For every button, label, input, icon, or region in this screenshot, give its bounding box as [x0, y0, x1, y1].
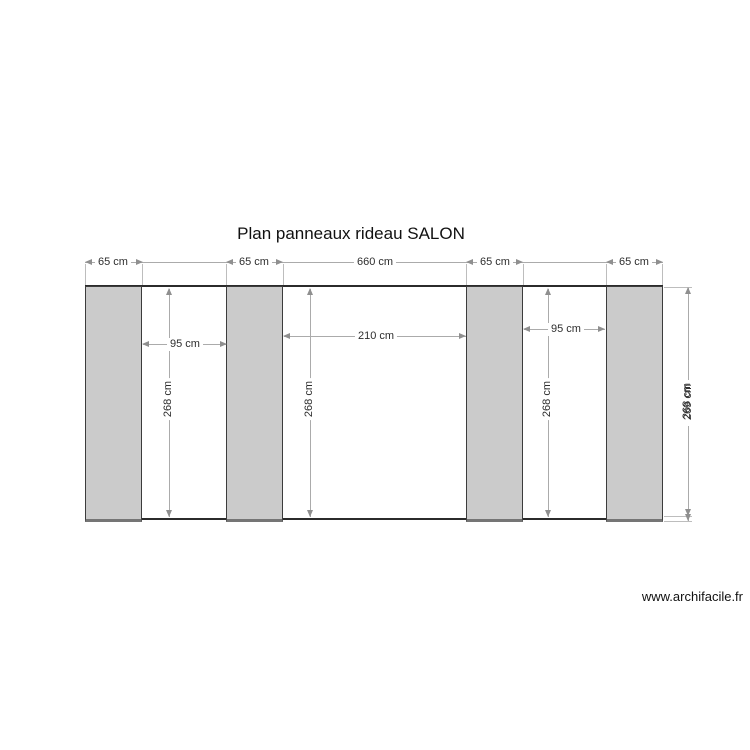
dim-label-gap1: 95 cm	[167, 338, 203, 351]
dim-label-height-2: 268 cm	[303, 378, 316, 420]
extension-line	[662, 264, 663, 286]
dim-label-height-1: 268 cm	[162, 378, 175, 420]
page-title: Plan panneaux rideau SALON	[237, 224, 465, 244]
dim-arrow-right	[598, 326, 605, 332]
curtain-panel-3	[466, 286, 523, 522]
dim-arrow-up	[685, 287, 691, 294]
dim-label-gap3: 95 cm	[548, 323, 584, 336]
curtain-panel-2	[226, 286, 283, 522]
dim-label-panel2-width: 65 cm	[236, 256, 272, 269]
dim-arrow-up	[307, 288, 313, 295]
dim-arrow-down	[685, 514, 691, 521]
dim-arrow-left	[523, 326, 530, 332]
dim-arrow-up	[166, 288, 172, 295]
dim-arrow-left	[466, 259, 473, 265]
archifacile-watermark: www.archifacile.fr	[642, 589, 743, 604]
dim-arrow-right	[656, 259, 663, 265]
outer-extension-bottom-2	[664, 521, 692, 522]
plan-canvas: Plan panneaux rideau SALON 65 cm 65 cm 6…	[0, 0, 750, 750]
extension-line	[226, 264, 227, 286]
extension-line	[283, 264, 284, 286]
dim-label-panel3-width: 65 cm	[477, 256, 513, 269]
dim-arrow-down	[307, 510, 313, 517]
dim-arrow-left	[85, 259, 92, 265]
dim-label-height-3: 268 cm	[541, 378, 554, 420]
wall-bottom-line	[85, 518, 663, 520]
extension-line	[142, 264, 143, 286]
dim-arrow-down	[166, 510, 172, 517]
dim-arrow-up	[545, 288, 551, 295]
dim-label-panel1-width: 65 cm	[95, 256, 131, 269]
dim-arrow-left	[142, 341, 149, 347]
dim-label-total-width: 660 cm	[354, 256, 396, 269]
dim-arrow-right	[276, 259, 283, 265]
dim-arrow-right	[516, 259, 523, 265]
dim-arrow-left	[283, 333, 290, 339]
dim-arrow-right	[459, 333, 466, 339]
extension-line	[606, 264, 607, 286]
dim-arrow-right	[220, 341, 227, 347]
curtain-panel-4	[606, 286, 663, 522]
extension-line	[466, 264, 467, 286]
dim-arrow-left	[606, 259, 613, 265]
curtain-panel-1	[85, 286, 142, 522]
dim-arrow-down	[545, 510, 551, 517]
wall-top-line	[85, 285, 663, 287]
extension-line	[85, 264, 86, 286]
dim-label-gap2: 210 cm	[355, 330, 397, 343]
dim-label-outer-height-overlap: 269 cm	[682, 381, 695, 423]
dim-arrow-right	[136, 259, 143, 265]
extension-line	[523, 264, 524, 286]
dim-label-panel4-width: 65 cm	[616, 256, 652, 269]
dim-arrow-left	[226, 259, 233, 265]
